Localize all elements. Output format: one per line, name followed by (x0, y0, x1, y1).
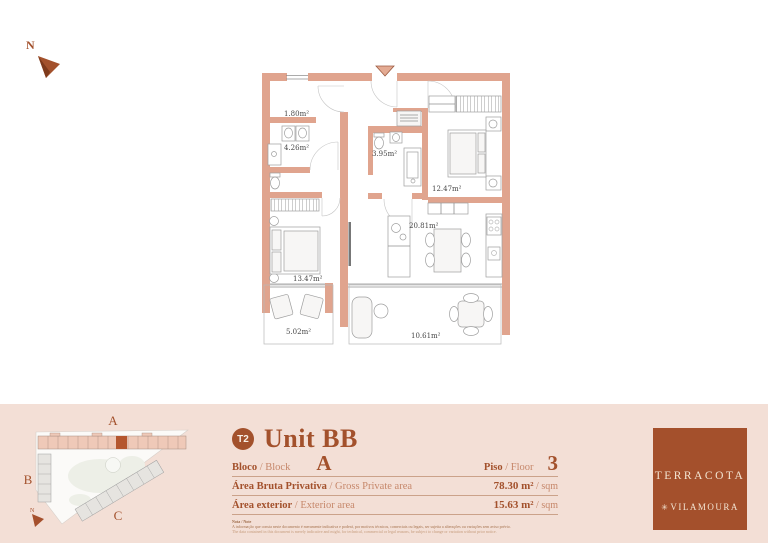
info-header: T2 Unit BB (232, 426, 558, 452)
gross-label-pt: Área Bruta Privativa (232, 481, 327, 492)
north-arrow: N (20, 14, 80, 94)
disclaimer: Nota / Note A informação que consta nest… (232, 519, 558, 534)
info-panel: T2 Unit BB Bloco / Block A Piso / Floor … (232, 426, 558, 534)
site-label-b: B (24, 472, 33, 487)
block-label-pt: Bloco (232, 462, 257, 473)
floor-value: 3 (548, 455, 559, 471)
ext-value: 15.63 m² (494, 499, 534, 511)
room-label-bedroom-1: 12.47m² (432, 185, 462, 193)
room-label-balcony-1: 5.02m² (286, 328, 311, 336)
gross-unit: / sqm (534, 481, 558, 492)
site-label-a: A (108, 413, 118, 428)
unit-title: Unit BB (264, 426, 358, 452)
footer-band: A B C N T2 Unit BB Bloco / Block A (0, 404, 768, 543)
ext-label-en: / Exterior area (292, 500, 355, 511)
bedroom-1-furniture (429, 96, 501, 190)
floor-plan: 1.80m² 4.26m² 3.95m² 12.47m² 20.81m² 13.… (250, 56, 520, 352)
logo-box: TERRACOTA ✳VILAMOURA (653, 428, 747, 530)
ext-label-pt: Área exterior (232, 500, 292, 511)
living-furniture (349, 203, 503, 277)
row-block-floor: Bloco / Block A Piso / Floor 3 (232, 452, 558, 477)
entrance-marker-icon (376, 66, 394, 76)
gross-label-en: / Gross Private area (327, 481, 412, 492)
site-north-icon: N (30, 508, 44, 527)
logo-location-text: VILAMOURA (670, 502, 739, 512)
room-label-bathroom-2: 3.95m² (372, 150, 397, 158)
site-block-b (38, 454, 51, 502)
svg-text:N: N (30, 508, 35, 514)
room-label-balcony-2: 10.61m² (411, 332, 441, 340)
floor-label-en: / Floor (503, 462, 534, 473)
bathroom-2-fixtures (374, 111, 421, 186)
type-badge: T2 (232, 428, 254, 450)
bathroom-1-fixtures (268, 126, 309, 189)
ext-unit: / sqm (534, 500, 558, 511)
site-plan: A B C N (20, 408, 210, 538)
bedroom-2-furniture (270, 199, 321, 283)
room-label-bathroom-1: 4.26m² (284, 144, 309, 152)
north-arrow-icon (20, 14, 80, 94)
site-label-c: C (114, 508, 123, 523)
logo-brand: TERRACOTA (653, 470, 747, 482)
plan-area: N (0, 0, 768, 404)
disclaimer-en: The data contained in this document is m… (232, 529, 558, 534)
gross-value: 78.30 m² (494, 480, 534, 492)
row-gross-area: Área Bruta Privativa / Gross Private are… (232, 477, 558, 496)
row-exterior-area: Área exterior / Exterior area 15.63 m² /… (232, 496, 558, 515)
block-value: A (316, 455, 331, 471)
logo-location: ✳VILAMOURA (653, 502, 747, 512)
room-label-living: 20.81m² (409, 222, 439, 230)
block-label-en: / Block (257, 462, 290, 473)
floor-label-pt: Piso (484, 462, 503, 473)
room-label-closet: 1.80m² (284, 110, 309, 118)
site-unit-highlight (116, 436, 127, 449)
page: N (0, 0, 768, 543)
north-label: N (26, 38, 35, 53)
room-label-bedroom-2: 13.47m² (293, 275, 323, 283)
logo-flower-icon: ✳ (661, 503, 669, 512)
